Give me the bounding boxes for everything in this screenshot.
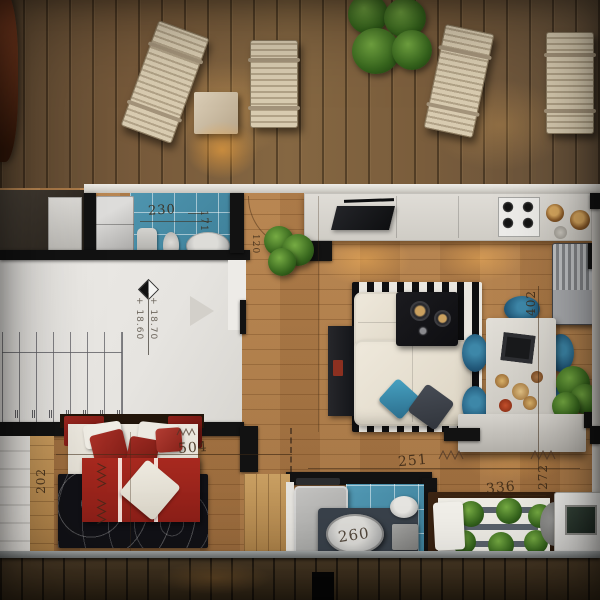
shower-cabin-top — [96, 196, 134, 254]
direction-arrow — [190, 296, 214, 326]
sketch-mark-icon — [438, 446, 464, 465]
dim-arrow — [188, 213, 204, 214]
wardrobe-wood-strip — [30, 436, 54, 558]
deck-lounger-4 — [546, 32, 594, 134]
towel-rail — [296, 478, 340, 485]
wall-segment — [230, 193, 244, 253]
dim-label-bath-width: 230 — [148, 202, 177, 218]
deck-bottom — [0, 556, 600, 600]
console-decor — [333, 360, 343, 376]
sketch-mark-icon — [176, 422, 196, 441]
floorplan-render: 230 171 + 18.70 + 18.60 120 — [0, 0, 600, 600]
decor-bowl — [418, 326, 428, 336]
dim-label-dining-depth: 402 — [524, 290, 538, 316]
potted-grass — [392, 30, 432, 70]
dining-chair — [462, 334, 488, 372]
burner — [522, 217, 534, 229]
wall-segment — [240, 300, 246, 334]
burner — [502, 217, 514, 229]
window-band — [84, 184, 600, 193]
sketch-mark-icon — [92, 499, 111, 525]
wall-segment — [0, 250, 250, 260]
bath-cabinet — [392, 524, 418, 550]
door-opening-dash — [290, 428, 292, 472]
range-hood — [331, 206, 395, 230]
daybed-pillow — [433, 501, 465, 551]
burner — [522, 201, 534, 213]
burner — [502, 201, 514, 213]
decor-bowl — [410, 301, 430, 321]
elevation-label-lower: + 18.60 — [132, 297, 146, 371]
pencil-line — [318, 196, 319, 432]
dim-line — [130, 432, 131, 556]
hall-potted-plant — [268, 248, 296, 276]
plate — [499, 399, 512, 412]
deck-side-table — [194, 92, 238, 134]
plate — [531, 371, 543, 383]
stair-edge — [122, 332, 123, 426]
fruit-bowl — [546, 204, 564, 222]
dim-label-guestbed-width: 336 — [485, 478, 516, 497]
deck-rail — [0, 551, 600, 558]
laundry-unit — [48, 197, 82, 251]
dim-label-bedroom-width: 504 — [177, 439, 208, 457]
cabinet-seam — [458, 196, 459, 238]
dim-line — [56, 454, 292, 455]
cabinet-window — [565, 505, 597, 535]
dim-label-living-width: 251 — [397, 452, 428, 471]
wall-segment — [444, 428, 480, 441]
dim-line — [538, 286, 539, 470]
shower-divider — [96, 224, 134, 225]
shower-panel — [286, 482, 294, 560]
wall-segment — [240, 426, 258, 472]
decor-bowl — [434, 310, 451, 327]
plate — [495, 374, 509, 388]
washbasin-2 — [390, 496, 418, 518]
sketch-mark-icon — [92, 463, 111, 489]
deck-top — [0, 0, 600, 190]
wall-segment — [590, 193, 600, 209]
dim-label-bedroom-depth: 202 — [34, 468, 48, 494]
cabinet-seam — [396, 196, 397, 238]
serving-tray — [500, 332, 535, 364]
elevation-labels: + 18.70 + 18.60 — [126, 297, 160, 371]
sketch-mark-icon — [530, 446, 556, 465]
elevation-label-upper: + 18.70 — [146, 297, 160, 371]
small-plate — [554, 226, 567, 239]
plate — [523, 396, 537, 410]
dim-label-guestbed-depth: 272 — [536, 464, 550, 490]
dim-label-hall: 120 — [250, 234, 260, 254]
wall-segment — [84, 193, 96, 257]
bath2-closet — [244, 474, 290, 558]
stair-rail — [2, 352, 122, 353]
coffee-table — [396, 292, 458, 346]
cooktop — [498, 197, 540, 237]
wall-segment — [590, 426, 600, 444]
wardrobe — [0, 436, 30, 558]
leaf-print — [496, 498, 522, 524]
deck-lounger-2 — [250, 40, 298, 128]
deck-vent — [312, 572, 334, 600]
fruit-bowl — [570, 210, 590, 230]
